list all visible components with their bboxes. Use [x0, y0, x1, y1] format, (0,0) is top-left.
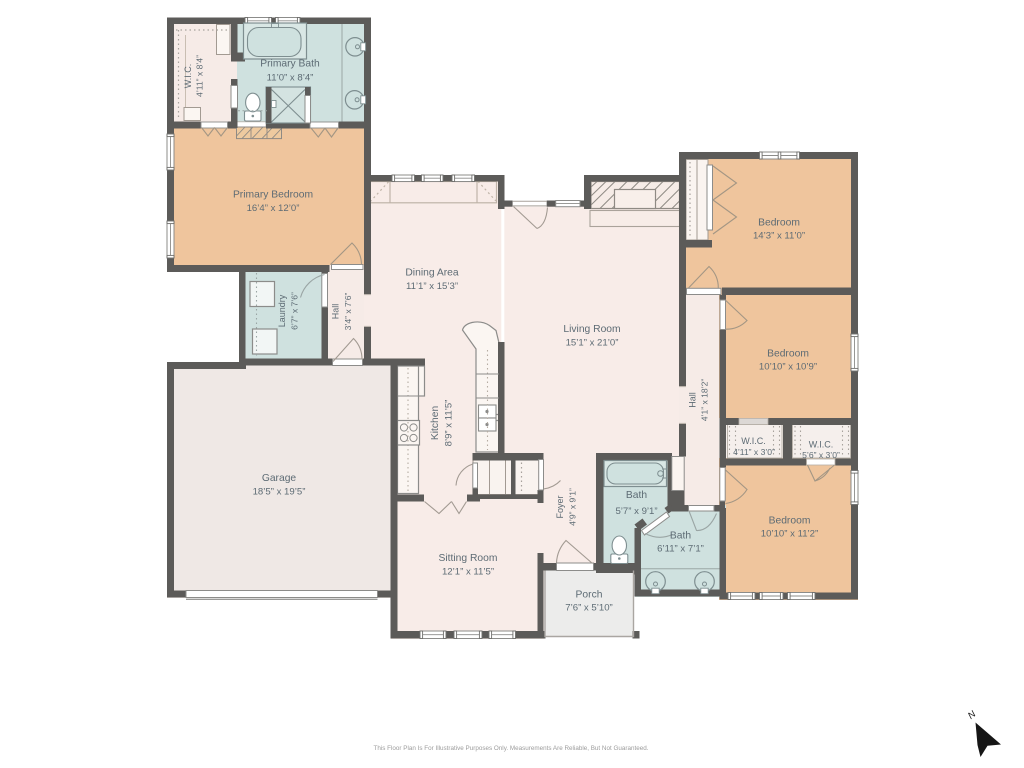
svg-text:W.I.C.: W.I.C.	[741, 436, 766, 446]
svg-text:10’10” x 10’9”: 10’10” x 10’9”	[759, 362, 817, 373]
svg-text:10’10” x 11’2”: 10’10” x 11’2”	[761, 529, 818, 540]
svg-text:4’11” x 3’0”: 4’11” x 3’0”	[733, 447, 775, 457]
svg-text:Porch: Porch	[576, 590, 603, 601]
svg-text:11’1” x 15’3”: 11’1” x 15’3”	[406, 281, 458, 292]
svg-text:Hall: Hall	[331, 304, 341, 320]
svg-text:Bath: Bath	[626, 490, 647, 501]
svg-text:4’1” x 18’2”: 4’1” x 18’2”	[700, 379, 710, 422]
svg-text:12’1” x 11’5”: 12’1” x 11’5”	[442, 567, 494, 578]
svg-text:Living Room: Living Room	[563, 324, 620, 335]
svg-text:Bedroom: Bedroom	[769, 516, 811, 527]
svg-text:18’5” x 19’5”: 18’5” x 19’5”	[253, 487, 306, 498]
svg-text:6’7” x 7’6”: 6’7” x 7’6”	[290, 292, 300, 330]
svg-text:5’6” x 3’0”: 5’6” x 3’0”	[802, 450, 840, 460]
svg-text:16’4” x 12’0”: 16’4” x 12’0”	[247, 203, 300, 214]
svg-text:5’7” x 9’1”: 5’7” x 9’1”	[615, 506, 657, 517]
svg-text:Kitchen: Kitchen	[430, 406, 441, 441]
svg-text:11’0” x 8’4”: 11’0” x 8’4”	[267, 73, 314, 84]
svg-text:Foyer: Foyer	[555, 495, 565, 518]
svg-text:Sitting Room: Sitting Room	[439, 553, 498, 564]
svg-text:14’3” x 11’0”: 14’3” x 11’0”	[753, 231, 805, 242]
svg-text:Bedroom: Bedroom	[767, 349, 809, 360]
svg-text:3’4” x 7’6”: 3’4” x 7’6”	[343, 292, 353, 330]
svg-text:8’9” x 11’5”: 8’9” x 11’5”	[444, 400, 455, 447]
svg-text:Hall: Hall	[688, 392, 698, 408]
svg-text:W.I.C.: W.I.C.	[183, 64, 193, 89]
svg-text:Primary Bath: Primary Bath	[260, 59, 320, 70]
svg-text:Primary Bedroom: Primary Bedroom	[233, 190, 313, 201]
svg-text:6’11” x 7’1”: 6’11” x 7’1”	[657, 544, 704, 555]
svg-text:W.I.C.: W.I.C.	[809, 440, 834, 450]
svg-text:Laundry: Laundry	[277, 294, 287, 327]
svg-text:Bedroom: Bedroom	[758, 218, 800, 229]
svg-text:This Floor Plan Is For Illustr: This Floor Plan Is For Illustrative Purp…	[374, 745, 649, 752]
svg-text:Bath: Bath	[670, 531, 691, 542]
svg-text:15’1” x 21’0”: 15’1” x 21’0”	[566, 338, 619, 349]
svg-text:4’11” x 8’4”: 4’11” x 8’4”	[195, 55, 205, 97]
svg-text:7’6” x 5’10”: 7’6” x 5’10”	[565, 603, 612, 614]
svg-text:4’9” x 9’1”: 4’9” x 9’1”	[568, 488, 578, 526]
svg-text:Dining Area: Dining Area	[405, 268, 459, 279]
svg-text:Garage: Garage	[262, 473, 297, 484]
